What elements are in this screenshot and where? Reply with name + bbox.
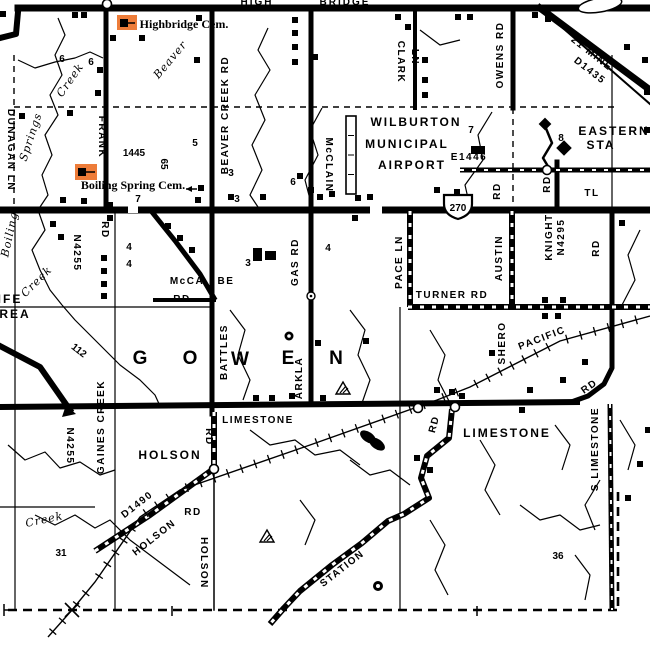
- us-270-shield-label: 270: [450, 203, 467, 214]
- building-square: [198, 185, 204, 191]
- building-square: [367, 194, 373, 200]
- building-square: [292, 17, 298, 23]
- map-label: TL: [584, 188, 599, 199]
- building-square: [624, 44, 630, 50]
- map-label: LIMESTONE: [222, 415, 294, 426]
- building-square: [434, 387, 440, 393]
- building-rect: [265, 251, 276, 260]
- map-label: REA: [0, 307, 31, 321]
- map-label: OWENS RD: [495, 22, 506, 89]
- map-label: McCLAIN: [323, 138, 334, 193]
- building-square: [555, 313, 561, 319]
- building-square: [297, 173, 303, 179]
- map-label: 5: [192, 138, 198, 149]
- building-square: [228, 194, 234, 200]
- cemetery-icon-square: [120, 19, 128, 27]
- map-label: HOLSON: [138, 448, 201, 462]
- building-square: [50, 221, 56, 227]
- map-label: 4: [325, 243, 331, 254]
- building-square: [58, 234, 64, 240]
- shield-layer: 270: [444, 195, 472, 219]
- building-square: [560, 297, 566, 303]
- building-square: [532, 12, 538, 18]
- building-square: [363, 338, 369, 344]
- map-viewport[interactable]: 270Highbridge Cem.Boiling Spring Cem.DUN…: [0, 0, 650, 650]
- map-label: HIGH: [241, 0, 274, 8]
- building-square: [320, 395, 326, 401]
- bridge-mark: [370, 206, 382, 214]
- cemetery-layer: Highbridge Cem.Boiling Spring Cem.: [75, 15, 228, 192]
- building-square: [60, 197, 66, 203]
- map-label: 6: [88, 57, 94, 68]
- building-square: [195, 197, 201, 203]
- building-square: [519, 407, 525, 413]
- map-label: S LIMESTONE: [590, 407, 601, 491]
- building-square: [619, 220, 625, 226]
- building-square: [527, 387, 533, 393]
- map-label: 4: [126, 259, 132, 270]
- map-label: 7: [468, 125, 474, 136]
- map-label: N4255: [71, 235, 82, 272]
- building-square: [405, 24, 411, 30]
- map-label: RD: [492, 182, 503, 199]
- map-label: SHERO: [497, 321, 508, 364]
- map-label: E1446: [451, 152, 487, 163]
- labels-layer: DUNAGAN LNFRANKN4255RDBEAVER CREEK RDMcC…: [0, 0, 650, 590]
- creek-line: [480, 440, 500, 515]
- building-square: [489, 350, 495, 356]
- bridge-mark: [128, 205, 138, 213]
- map-label: Creek: [18, 263, 54, 299]
- map-label: 4: [126, 242, 132, 253]
- pointer-arrow-head: [186, 186, 192, 192]
- building-square: [0, 11, 6, 17]
- map-label: 31: [55, 548, 67, 559]
- building-square: [107, 202, 113, 208]
- building-square: [625, 495, 631, 501]
- building-square: [72, 12, 78, 18]
- building-square: [434, 187, 440, 193]
- building-square: [101, 281, 107, 287]
- building-square: [542, 313, 548, 319]
- map-label: RD: [591, 239, 602, 256]
- junction-circle-icon: [451, 403, 460, 412]
- pond-donut-hole: [376, 584, 380, 588]
- road: [0, 402, 577, 407]
- map-label: RD: [99, 221, 110, 238]
- map-label: 1445: [123, 148, 146, 159]
- road: [0, 346, 70, 410]
- map-label: O: [183, 348, 198, 369]
- map-label: 3: [234, 194, 240, 205]
- junction-circle-icon: [414, 404, 423, 413]
- junction-circle-icon: [103, 0, 112, 9]
- map-label: 6: [59, 54, 65, 65]
- building-square: [582, 359, 588, 365]
- building-square: [81, 198, 87, 204]
- building-square: [467, 14, 473, 20]
- creek-line: [622, 230, 640, 305]
- map-label: G: [133, 348, 148, 369]
- map-label: BE: [218, 276, 235, 287]
- map-label: W: [231, 349, 249, 370]
- map-label: 65: [158, 158, 169, 170]
- building-square: [637, 461, 643, 467]
- creek-line: [575, 555, 590, 600]
- map-label: Boiling: [0, 210, 21, 259]
- map-label: McCA: [170, 276, 204, 287]
- road-under-construction: [610, 404, 612, 610]
- building-square: [177, 235, 183, 241]
- boundary-layer: [4, 492, 618, 616]
- pond-outline: [577, 0, 623, 16]
- building-square: [194, 57, 200, 63]
- building-rect: [253, 248, 262, 261]
- map-label: 8: [558, 133, 564, 144]
- building-square: [645, 427, 650, 433]
- building-square: [422, 92, 428, 98]
- map-label: MUNICIPAL: [365, 137, 449, 151]
- map-label: BATTLES: [219, 324, 230, 380]
- map-label: N4255: [64, 428, 75, 465]
- map-label: 7: [135, 194, 141, 205]
- map-label: AIRPORT: [378, 158, 446, 172]
- building-square: [352, 215, 358, 221]
- gas-well-hole: [287, 334, 291, 338]
- building-square: [422, 57, 428, 63]
- map-label: AUSTIN: [494, 235, 505, 281]
- building-square: [317, 194, 323, 200]
- map-label: Beaver: [150, 38, 190, 82]
- railroad-tick: [104, 562, 111, 567]
- map-label: IFE: [0, 292, 22, 306]
- map-canvas[interactable]: 270Highbridge Cem.Boiling Spring Cem.DUN…: [0, 0, 650, 650]
- map-label: CLARK: [395, 41, 406, 84]
- building-square: [644, 89, 650, 95]
- map-label: Creek: [24, 509, 64, 530]
- map-label: LN: [409, 49, 420, 65]
- map-label: RD: [427, 415, 442, 435]
- cemetery-icon-square: [78, 168, 86, 176]
- creek-line: [430, 520, 448, 595]
- creek-line: [620, 420, 635, 470]
- building-square: [19, 113, 25, 119]
- map-label: 3: [228, 168, 234, 179]
- map-label: KNIGHT: [544, 213, 555, 260]
- building-square: [95, 90, 101, 96]
- building-square: [414, 455, 420, 461]
- building-square: [110, 35, 116, 41]
- map-label: 112: [69, 342, 89, 361]
- map-label: E: [282, 348, 295, 369]
- building-square: [67, 110, 73, 116]
- creek-line: [300, 500, 315, 545]
- map-label: PACIFIC: [517, 325, 567, 353]
- airport-layer: [346, 116, 356, 194]
- building-square: [395, 14, 401, 20]
- building-square: [292, 44, 298, 50]
- map-label: GAINES CREEK: [96, 380, 107, 474]
- building-square: [315, 340, 321, 346]
- map-label: 6: [290, 177, 296, 188]
- building-square: [139, 35, 145, 41]
- building-square: [560, 377, 566, 383]
- building-square: [449, 389, 455, 395]
- building-square: [101, 268, 107, 274]
- building-square: [292, 59, 298, 65]
- junction-circle-icon: [543, 166, 552, 175]
- building-square: [165, 223, 171, 229]
- railroad-tick: [95, 574, 102, 579]
- map-label: RD: [542, 175, 553, 192]
- building-square: [189, 247, 195, 253]
- building-square: [260, 194, 266, 200]
- creek-line: [350, 310, 370, 403]
- building-square: [312, 54, 318, 60]
- map-label: RD: [203, 428, 214, 445]
- map-label: BEAVER CREEK RD: [220, 56, 231, 174]
- cemetery-label: Boiling Spring Cem.: [81, 178, 185, 192]
- building-square: [422, 77, 428, 83]
- creek-line: [520, 505, 600, 530]
- building-square: [253, 395, 259, 401]
- building-square: [269, 395, 275, 401]
- building-square: [308, 187, 314, 193]
- map-label: 3: [245, 258, 251, 269]
- map-label: STA: [586, 138, 615, 152]
- creek-line: [420, 30, 460, 45]
- building-square: [107, 215, 113, 221]
- building-square: [459, 393, 465, 399]
- map-label: HOLSON: [198, 537, 209, 589]
- building-square: [642, 57, 648, 63]
- building-square: [97, 67, 103, 73]
- map-label: TURNER RD: [416, 290, 488, 301]
- map-label: RD: [184, 507, 201, 518]
- roads-layer: [0, 8, 650, 624]
- map-label: FRANK: [96, 116, 107, 159]
- map-label: GAS RD: [290, 238, 301, 286]
- map-label: DUNAGAN LN: [5, 109, 16, 191]
- creek-line: [250, 28, 270, 207]
- map-label: EASTERN: [578, 124, 649, 138]
- building-square: [427, 467, 433, 473]
- cemetery-label: Highbridge Cem.: [140, 17, 229, 31]
- map-label: BRIDGE: [320, 0, 371, 8]
- map-label: RD: [579, 377, 600, 396]
- building-square: [542, 297, 548, 303]
- map-label: ARKLA: [294, 357, 305, 400]
- building-square: [455, 14, 461, 20]
- creek-line: [555, 425, 570, 470]
- building-square: [355, 195, 361, 201]
- diamond-icon: [539, 118, 552, 131]
- map-label: N: [329, 348, 343, 369]
- map-label: 36: [552, 551, 564, 562]
- building-square: [101, 293, 107, 299]
- map-label: RD: [173, 294, 190, 305]
- railroad-tick: [120, 538, 127, 543]
- map-label: PACE LN: [394, 235, 405, 289]
- building-square: [101, 255, 107, 261]
- map-label: LIMESTONE: [463, 426, 551, 440]
- map-label: N4295: [556, 219, 567, 256]
- building-square: [81, 12, 87, 18]
- map-label: WILBURTON: [370, 115, 461, 129]
- well-dot-icon: [310, 295, 313, 298]
- junction-circle-icon: [210, 465, 219, 474]
- building-square: [545, 16, 551, 22]
- building-square: [292, 30, 298, 36]
